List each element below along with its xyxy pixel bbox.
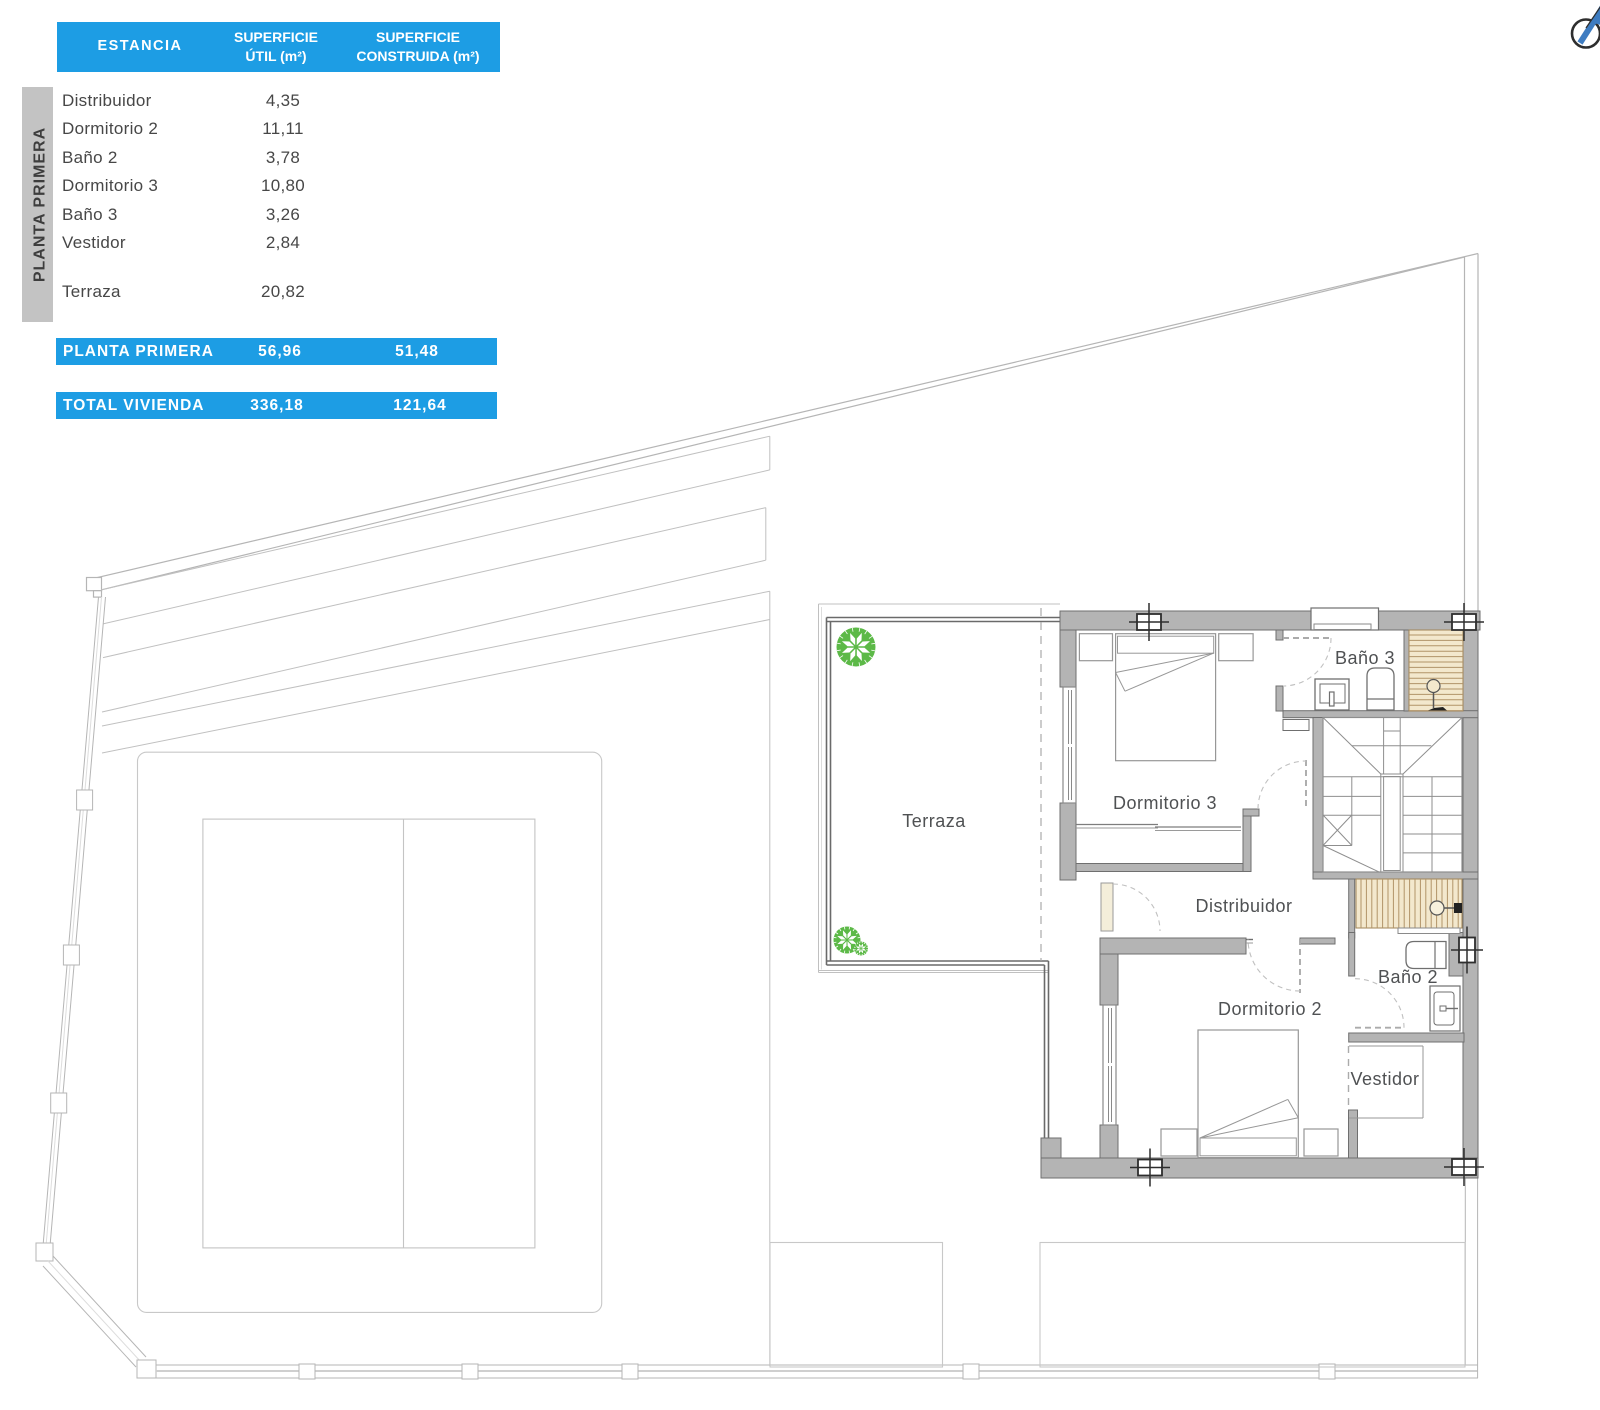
- svg-text:Baño 2: Baño 2: [1378, 967, 1438, 987]
- svg-text:Vestidor: Vestidor: [1350, 1069, 1419, 1089]
- svg-text:Dormitorio 2: Dormitorio 2: [1218, 999, 1322, 1019]
- svg-text:Baño 3: Baño 3: [1335, 648, 1395, 668]
- svg-text:Terraza: Terraza: [902, 811, 966, 831]
- svg-text:Dormitorio 3: Dormitorio 3: [1113, 793, 1217, 813]
- svg-text:Distribuidor: Distribuidor: [1195, 896, 1292, 916]
